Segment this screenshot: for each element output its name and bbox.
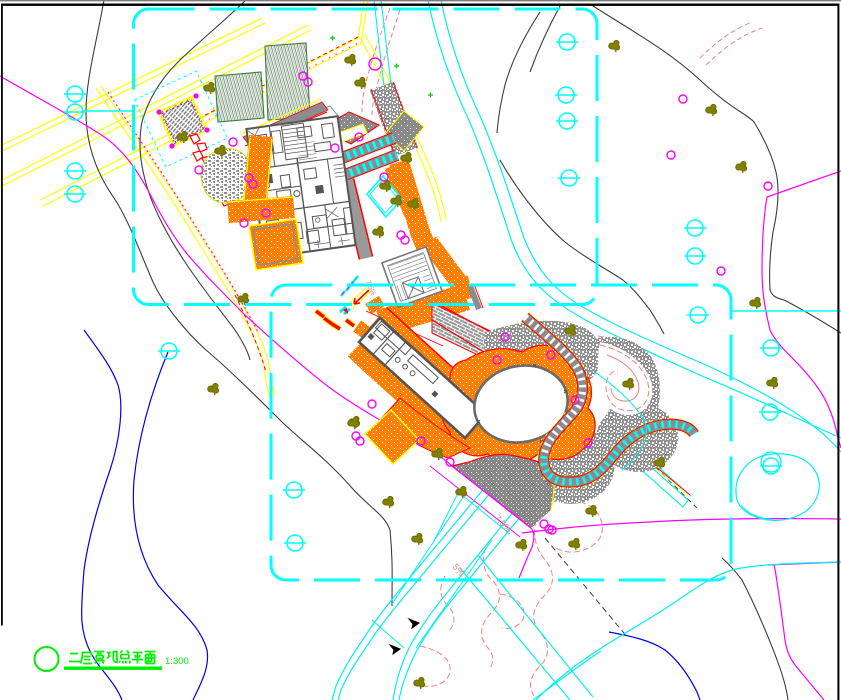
- svg-text:1:300: 1:300: [165, 656, 189, 667]
